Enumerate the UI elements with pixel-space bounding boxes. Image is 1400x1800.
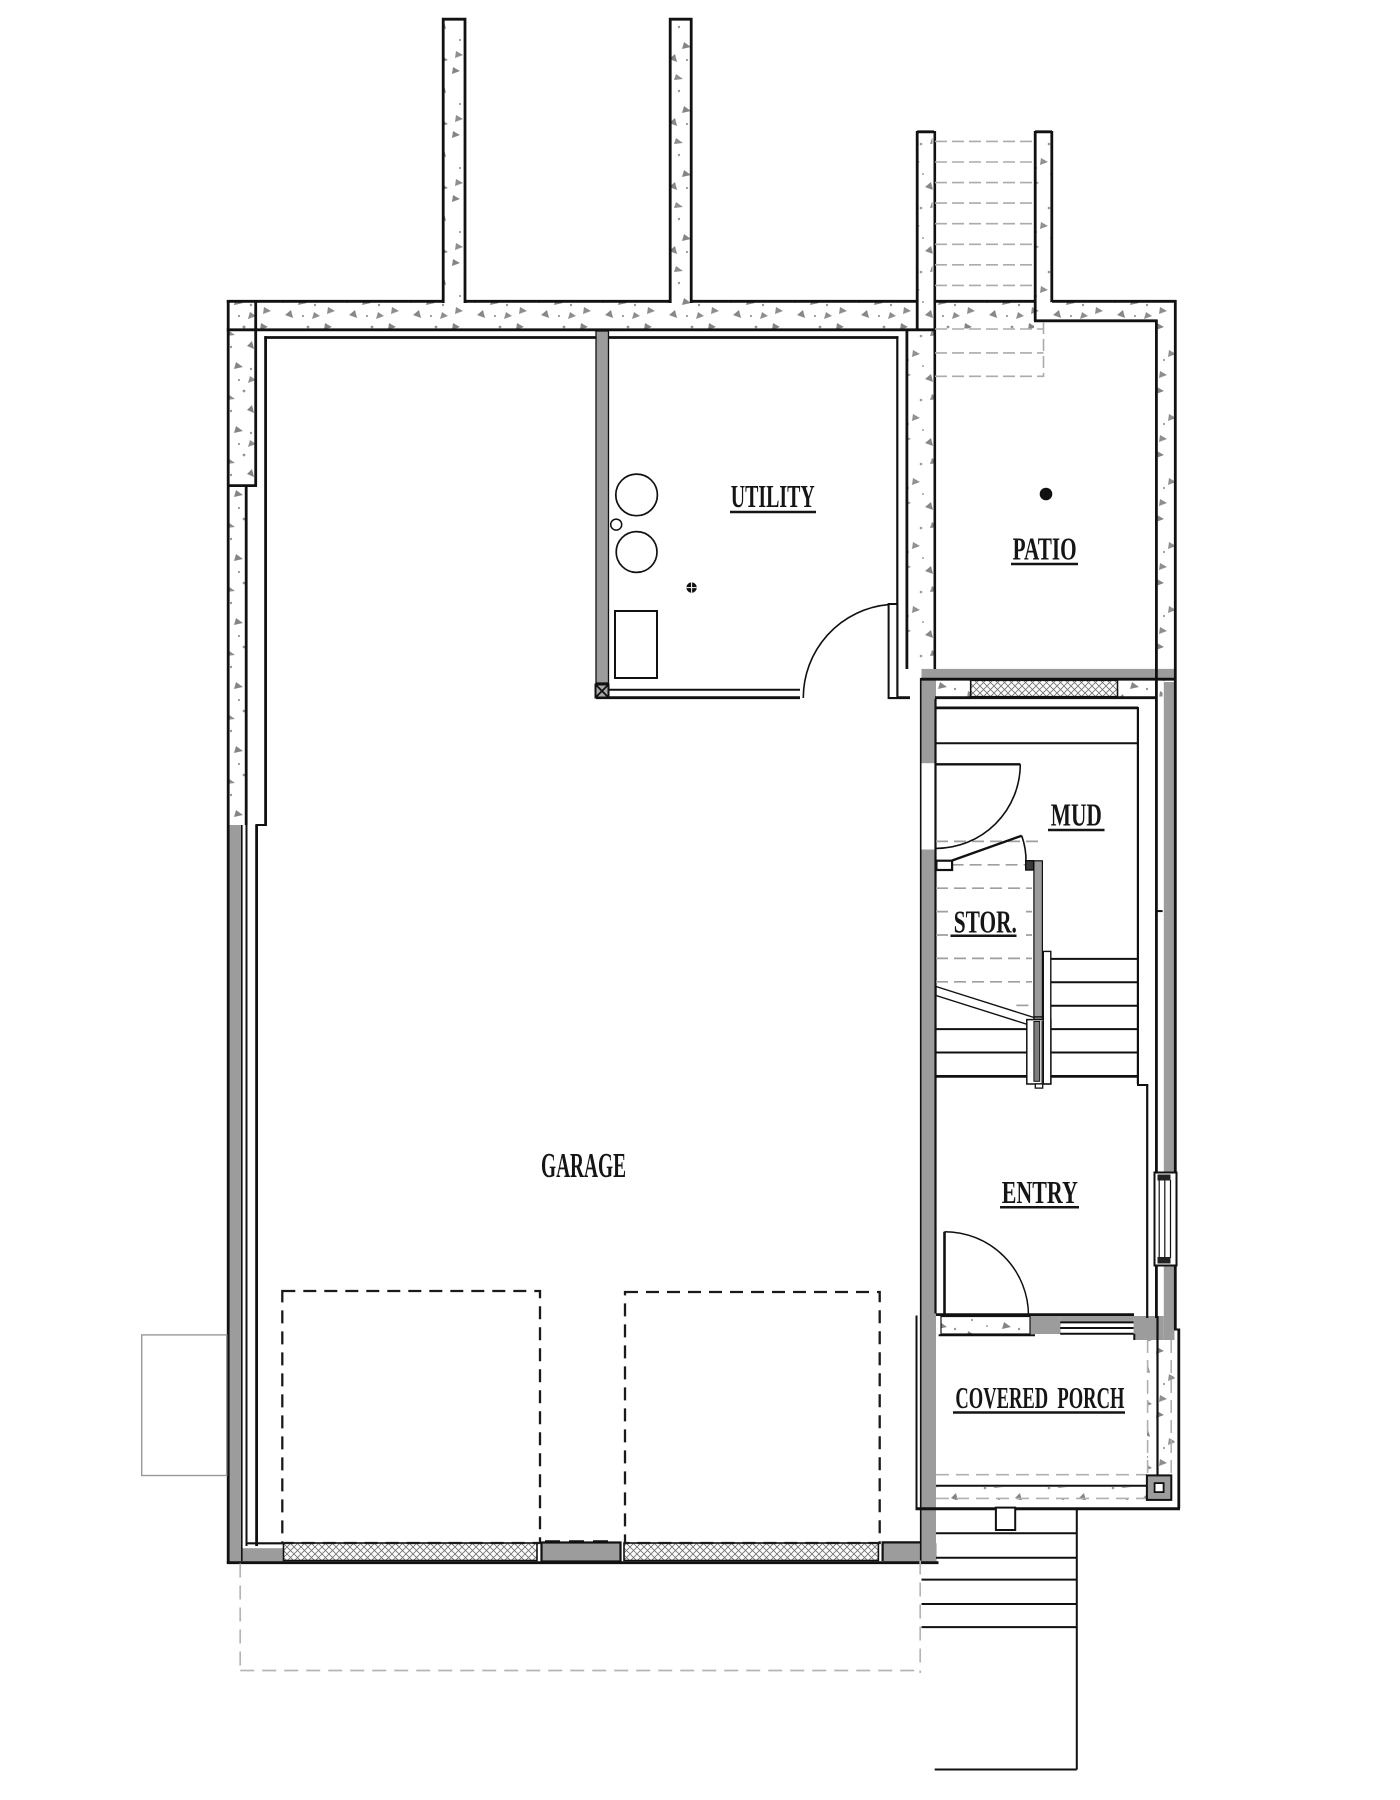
- svg-text:COVERED PORCH: COVERED PORCH: [955, 1380, 1124, 1415]
- svg-text:PATIO: PATIO: [1013, 531, 1077, 567]
- svg-text:GARAGE: GARAGE: [541, 1146, 626, 1185]
- svg-text:STOR.: STOR.: [954, 905, 1017, 940]
- svg-text:ENTRY: ENTRY: [1002, 1174, 1078, 1210]
- svg-text:UTILITY: UTILITY: [731, 478, 815, 514]
- svg-text:MUD: MUD: [1051, 797, 1102, 833]
